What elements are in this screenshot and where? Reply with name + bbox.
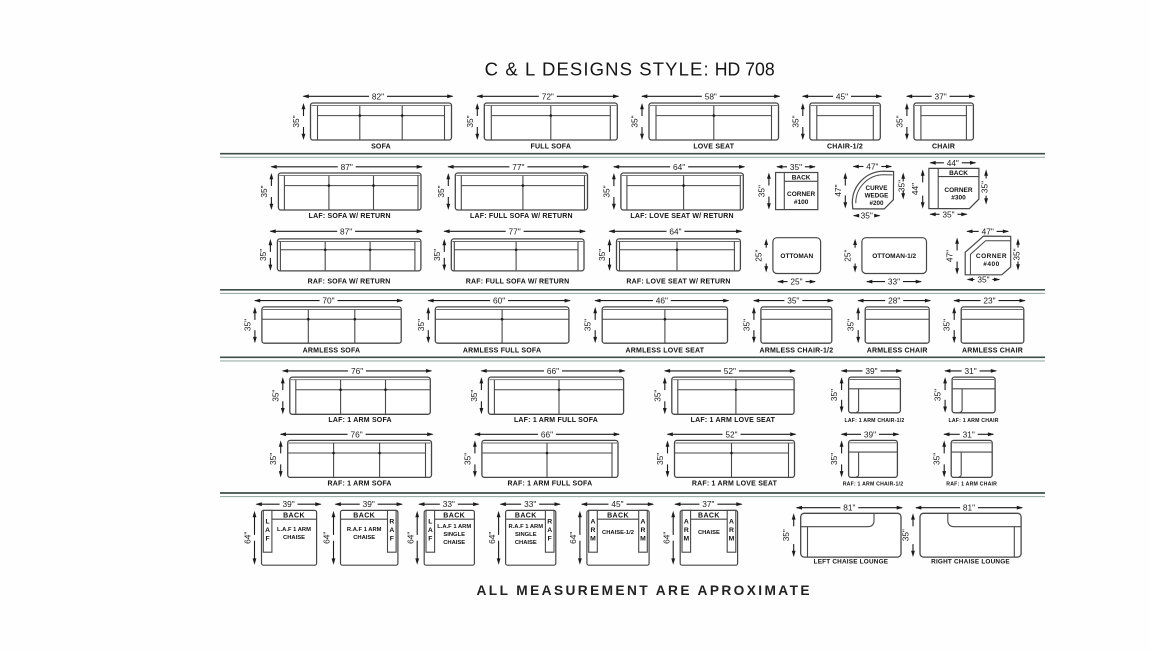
svg-text:47": 47" (982, 226, 994, 236)
svg-text:66": 66" (547, 366, 559, 376)
svg-text:ARMLESS CHAIR-1/2: ARMLESS CHAIR-1/2 (760, 347, 834, 354)
svg-text:46": 46" (656, 296, 668, 306)
svg-text:CHAIR: CHAIR (932, 143, 955, 150)
svg-text:58": 58" (705, 91, 717, 101)
svg-text:BACK: BACK (949, 170, 968, 177)
svg-text:R: R (547, 518, 552, 525)
svg-text:R: R (641, 527, 646, 534)
svg-text:35": 35" (829, 389, 839, 401)
svg-text:23": 23" (983, 296, 995, 306)
svg-text:ARMLESS CHAIR: ARMLESS CHAIR (867, 347, 928, 354)
svg-text:64": 64" (243, 532, 253, 544)
svg-text:64": 64" (322, 532, 332, 544)
svg-text:35": 35" (597, 249, 607, 261)
svg-text:35": 35" (469, 390, 479, 402)
svg-text:F: F (390, 536, 394, 543)
svg-text:45": 45" (836, 91, 848, 101)
svg-text:35": 35" (980, 181, 990, 193)
svg-text:33": 33" (524, 499, 536, 509)
svg-text:LAF: 1 ARM LOVE SEAT: LAF: 1 ARM LOVE SEAT (691, 417, 776, 424)
svg-text:ALL MEASUREMENT ARE APROXIMATE: ALL MEASUREMENT ARE APROXIMATE (477, 583, 810, 598)
svg-text:F: F (548, 536, 552, 543)
svg-text:M: M (640, 536, 646, 543)
svg-text:35": 35" (741, 319, 751, 331)
svg-text:A: A (428, 527, 433, 534)
svg-text:L.A.F 1 ARM: L.A.F 1 ARM (437, 524, 471, 530)
svg-text:35": 35" (655, 453, 665, 465)
svg-text:LOVE SEAT: LOVE SEAT (693, 143, 734, 150)
svg-text:M: M (729, 536, 735, 543)
svg-text:R.A.F 1 ARM: R.A.F 1 ARM (509, 524, 544, 530)
svg-text:BACK: BACK (607, 513, 629, 520)
svg-text:LAF: 1 ARM FULL SOFA: LAF: 1 ARM FULL SOFA (514, 417, 598, 424)
svg-text:35": 35" (781, 529, 791, 541)
svg-text:35": 35" (462, 453, 472, 465)
svg-text:#100: #100 (794, 199, 809, 206)
svg-text:47": 47" (945, 250, 955, 262)
svg-text:CHAISE-1/2: CHAISE-1/2 (602, 530, 634, 536)
svg-text:35": 35" (846, 319, 856, 331)
svg-text:35": 35" (630, 115, 640, 127)
svg-text:33": 33" (888, 277, 900, 287)
svg-text:35": 35" (933, 389, 943, 401)
svg-text:35": 35" (268, 453, 278, 465)
svg-text:47": 47" (833, 184, 843, 196)
svg-text:BACK: BACK (792, 175, 811, 182)
svg-text:BACK: BACK (515, 513, 537, 520)
svg-text:33": 33" (443, 499, 455, 509)
svg-text:FULL SOFA: FULL SOFA (531, 143, 572, 150)
svg-text:RAF: 1 ARM CHAIR-1/2: RAF: 1 ARM CHAIR-1/2 (843, 482, 904, 488)
svg-text:LEFT CHAISE LOUNGE: LEFT CHAISE LOUNGE (814, 559, 889, 566)
svg-text:CORNER: CORNER (787, 191, 815, 198)
svg-text:72": 72" (542, 91, 554, 101)
svg-text:SOFA: SOFA (371, 143, 391, 150)
svg-text:35": 35" (436, 185, 446, 197)
svg-text:66": 66" (541, 429, 553, 439)
svg-text:OTTOMAN-1/2: OTTOMAN-1/2 (872, 253, 916, 260)
svg-text:39": 39" (363, 499, 375, 509)
svg-text:81": 81" (843, 503, 855, 513)
svg-text:87": 87" (341, 162, 353, 172)
svg-text:25": 25" (790, 277, 802, 287)
svg-text:64": 64" (673, 162, 685, 172)
svg-text:#400: #400 (983, 261, 999, 268)
svg-text:CORNER: CORNER (976, 253, 1007, 260)
svg-text:64": 64" (661, 532, 671, 544)
svg-text:64": 64" (669, 226, 681, 236)
svg-text:CHAISE: CHAISE (283, 535, 305, 541)
svg-text:R.A.F 1 ARM: R.A.F 1 ARM (347, 527, 382, 533)
svg-text:28": 28" (888, 296, 900, 306)
svg-text:35": 35" (901, 529, 911, 541)
svg-text:HD 708: HD 708 (715, 59, 775, 80)
svg-text:#200: #200 (869, 200, 884, 207)
svg-text:82": 82" (372, 91, 384, 101)
svg-text:31": 31" (965, 366, 977, 376)
svg-text:76": 76" (351, 366, 363, 376)
svg-text:35": 35" (432, 249, 442, 261)
svg-text:M: M (590, 536, 596, 543)
svg-text:64": 64" (568, 532, 578, 544)
svg-text:#300: #300 (951, 195, 966, 202)
svg-text:87": 87" (340, 226, 352, 236)
svg-text:39": 39" (864, 429, 876, 439)
svg-text:35": 35" (756, 185, 766, 197)
svg-text:52": 52" (725, 429, 737, 439)
svg-text:A: A (547, 527, 552, 534)
svg-text:RAF: 1 ARM LOVE SEAT: RAF: 1 ARM LOVE SEAT (692, 481, 778, 488)
svg-text:WEDGE: WEDGE (865, 192, 889, 199)
svg-text:CORNER: CORNER (944, 187, 972, 194)
svg-text:ARMLESS LOVE SEAT: ARMLESS LOVE SEAT (626, 347, 705, 354)
svg-text:35": 35" (465, 115, 475, 127)
svg-text:37": 37" (935, 91, 947, 101)
svg-text:64": 64" (405, 532, 415, 544)
svg-text:77": 77" (509, 226, 521, 236)
svg-text:35": 35" (291, 115, 301, 127)
svg-text:37": 37" (702, 499, 714, 509)
svg-text:35": 35" (583, 319, 593, 331)
svg-text:ARMLESS SOFA: ARMLESS SOFA (303, 347, 361, 354)
svg-text:35": 35" (897, 180, 907, 192)
svg-text:35": 35" (601, 185, 611, 197)
svg-text:35": 35" (977, 275, 989, 285)
svg-text:RIGHT CHAISE LOUNGE: RIGHT CHAISE LOUNGE (931, 559, 1010, 566)
svg-text:ARMLESS CHAIR: ARMLESS CHAIR (962, 347, 1023, 354)
svg-text:A: A (389, 527, 394, 534)
svg-text:35": 35" (942, 209, 954, 219)
svg-text:35": 35" (790, 162, 802, 172)
svg-text:CHAIR-1/2: CHAIR-1/2 (827, 143, 863, 150)
svg-text:70": 70" (322, 296, 334, 306)
svg-text:39": 39" (283, 499, 295, 509)
svg-text:CHAISE: CHAISE (443, 540, 465, 546)
svg-text:C & L DESIGNS STYLE:: C & L DESIGNS STYLE: (485, 59, 709, 80)
svg-text:77": 77" (512, 162, 524, 172)
svg-text:LAF: LOVE SEAT W/ RETURN: LAF: LOVE SEAT W/ RETURN (630, 213, 733, 220)
svg-text:60": 60" (493, 296, 505, 306)
svg-text:76": 76" (351, 429, 363, 439)
svg-text:CHAISE: CHAISE (515, 540, 537, 546)
svg-text:25": 25" (843, 249, 853, 261)
svg-text:52": 52" (724, 366, 736, 376)
svg-text:35": 35" (1012, 248, 1022, 260)
svg-text:35": 35" (932, 453, 942, 465)
svg-text:35": 35" (894, 115, 904, 127)
svg-text:M: M (683, 536, 689, 543)
svg-text:RAF: 1 ARM CHAIR: RAF: 1 ARM CHAIR (946, 482, 997, 488)
svg-text:CURVE: CURVE (866, 185, 888, 192)
svg-text:LAF: SOFA W/ RETURN: LAF: SOFA W/ RETURN (309, 213, 391, 220)
svg-text:39": 39" (865, 366, 877, 376)
svg-text:35": 35" (270, 390, 280, 402)
svg-text:RAF: 1 ARM FULL SOFA: RAF: 1 ARM FULL SOFA (507, 481, 592, 488)
svg-text:F: F (428, 536, 432, 543)
svg-text:LAF: 1 ARM CHAIR-1/2: LAF: 1 ARM CHAIR-1/2 (844, 418, 904, 424)
svg-text:BACK: BACK (353, 513, 375, 520)
svg-text:BACK: BACK (443, 513, 465, 520)
svg-text:L: L (428, 518, 432, 525)
svg-text:LAF: 1 ARM SOFA: LAF: 1 ARM SOFA (328, 417, 391, 424)
svg-text:L.A.F 1 ARM: L.A.F 1 ARM (277, 527, 311, 533)
svg-text:LAF: 1 ARM CHAIR: LAF: 1 ARM CHAIR (948, 418, 998, 424)
svg-text:CHAISE: CHAISE (353, 535, 375, 541)
svg-text:35": 35" (790, 115, 800, 127)
svg-text:81": 81" (963, 503, 975, 513)
svg-text:44": 44" (910, 183, 920, 195)
svg-text:R: R (729, 527, 734, 534)
svg-text:64": 64" (487, 532, 497, 544)
svg-text:L: L (266, 518, 270, 525)
svg-text:BACK: BACK (698, 513, 720, 520)
svg-text:35": 35" (259, 185, 269, 197)
svg-text:A: A (684, 518, 689, 525)
svg-text:35": 35" (829, 453, 839, 465)
svg-text:SINGLE: SINGLE (515, 532, 537, 538)
svg-text:35": 35" (861, 211, 873, 221)
svg-text:RAF: LOVE SEAT W/ RETURN: RAF: LOVE SEAT W/ RETURN (626, 278, 730, 285)
svg-text:A: A (641, 518, 646, 525)
svg-text:F: F (266, 536, 270, 543)
svg-text:45": 45" (611, 499, 623, 509)
svg-text:A: A (265, 527, 270, 534)
svg-text:OTTOMAN: OTTOMAN (780, 253, 813, 260)
svg-text:35": 35" (416, 319, 426, 331)
svg-text:31": 31" (963, 429, 975, 439)
svg-text:ARMLESS FULL SOFA: ARMLESS FULL SOFA (463, 347, 541, 354)
svg-text:R: R (684, 527, 689, 534)
svg-text:RAF: SOFA W/ RETURN: RAF: SOFA W/ RETURN (308, 278, 391, 285)
svg-text:SINGLE: SINGLE (443, 532, 465, 538)
svg-text:35": 35" (242, 319, 252, 331)
svg-text:R: R (389, 518, 394, 525)
svg-text:A: A (591, 518, 596, 525)
svg-text:35": 35" (258, 249, 268, 261)
svg-text:CHAISE: CHAISE (698, 530, 720, 536)
svg-text:R: R (591, 527, 596, 534)
svg-text:RAF: FULL SOFA W/ RETURN: RAF: FULL SOFA W/ RETURN (466, 278, 570, 285)
svg-text:25": 25" (754, 249, 764, 261)
svg-text:A: A (729, 518, 734, 525)
svg-text:44": 44" (947, 158, 959, 168)
svg-text:35": 35" (942, 319, 952, 331)
svg-text:47": 47" (866, 162, 878, 172)
svg-text:BACK: BACK (283, 513, 305, 520)
svg-text:35": 35" (652, 390, 662, 402)
svg-text:RAF: 1 ARM SOFA: RAF: 1 ARM SOFA (328, 481, 392, 488)
svg-text:LAF: FULL SOFA W/ RETURN: LAF: FULL SOFA W/ RETURN (470, 213, 573, 220)
svg-text:35": 35" (787, 296, 799, 306)
